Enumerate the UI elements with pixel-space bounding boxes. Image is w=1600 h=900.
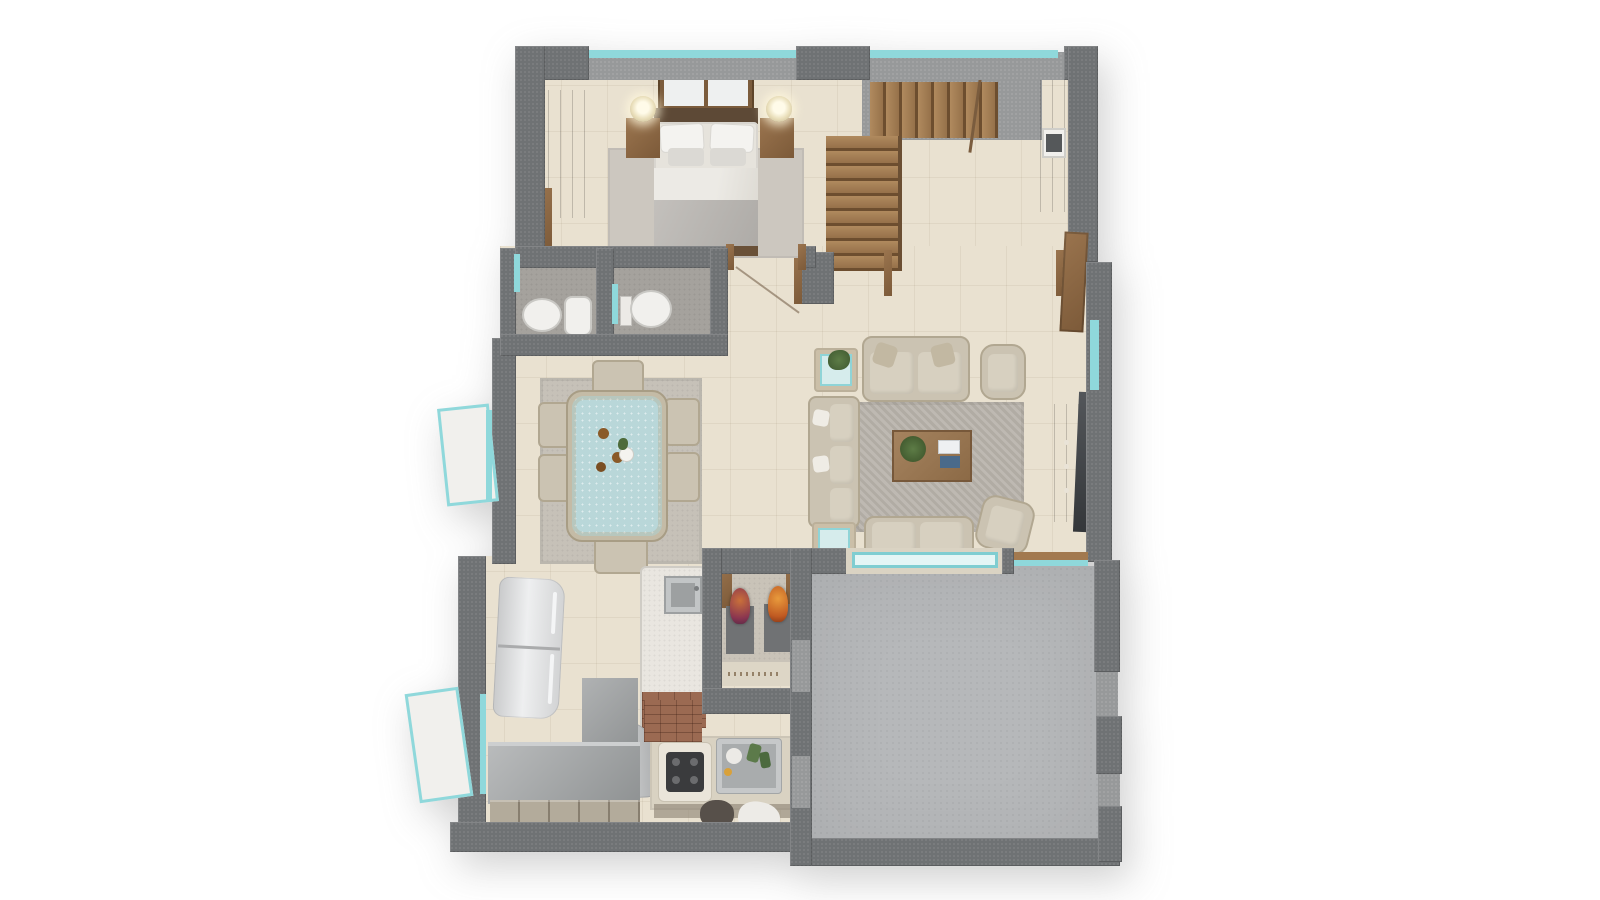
deity-statue-left bbox=[730, 588, 750, 624]
plate bbox=[596, 462, 606, 472]
floor-patio bbox=[806, 566, 1102, 856]
stair-stringer bbox=[898, 136, 902, 271]
pooja-west-wall bbox=[702, 548, 722, 698]
stair-step bbox=[826, 196, 898, 211]
console-knob bbox=[1064, 488, 1069, 493]
bedroom-south-wall bbox=[515, 246, 730, 268]
shower-tray bbox=[564, 296, 592, 336]
north-window-strip-1 bbox=[588, 50, 796, 58]
stair-step bbox=[826, 211, 898, 226]
armchair-top-right-seat bbox=[988, 354, 1018, 392]
appliance-door bbox=[1046, 134, 1062, 152]
north-window-strip-2 bbox=[868, 50, 1058, 58]
counter-l-vertical bbox=[582, 678, 638, 752]
passage-post bbox=[884, 250, 892, 296]
patio-rail-wood bbox=[1014, 552, 1088, 560]
sectional-seat bbox=[830, 446, 854, 484]
toilet-bowl bbox=[630, 290, 672, 328]
burner bbox=[672, 758, 680, 766]
table-lamp-left bbox=[630, 96, 656, 122]
casement-sill-kitchen bbox=[480, 694, 486, 794]
stair-step bbox=[826, 181, 898, 196]
stair-step bbox=[886, 82, 902, 138]
throw-pillow bbox=[812, 409, 831, 428]
patio-east-gap bbox=[1096, 672, 1118, 716]
washbasin bbox=[522, 298, 562, 332]
patio-rail-glass bbox=[1014, 560, 1088, 566]
counter-l-top bbox=[488, 746, 640, 804]
bath-door-teal-left bbox=[514, 254, 520, 292]
patio-west-gap bbox=[792, 756, 810, 808]
floor-plan-render bbox=[0, 0, 1600, 900]
coffee-table-plant bbox=[900, 436, 926, 462]
living-east-wall bbox=[1086, 262, 1112, 562]
coffee-table-book bbox=[940, 456, 960, 468]
cooktop bbox=[666, 752, 704, 792]
nightstand-left bbox=[626, 118, 660, 158]
sponge-yellow bbox=[724, 768, 732, 776]
bath-south-wall bbox=[500, 334, 728, 356]
kitchen-south-wall bbox=[450, 822, 802, 852]
island-faucet bbox=[694, 586, 699, 591]
plate bbox=[598, 428, 609, 439]
deity-statue-right bbox=[768, 586, 788, 622]
nightstand-right bbox=[760, 118, 794, 158]
flower-sprig bbox=[618, 438, 628, 450]
stair-step bbox=[826, 136, 898, 151]
bed-blanket bbox=[654, 200, 758, 248]
console-knob bbox=[1064, 464, 1069, 469]
island-sink-basin bbox=[671, 583, 695, 607]
console-knob bbox=[1064, 440, 1069, 445]
patio-west-wall bbox=[790, 548, 812, 866]
dining-west-wall bbox=[492, 338, 516, 564]
burner bbox=[690, 758, 698, 766]
dish bbox=[726, 748, 742, 764]
patio-east-wall-2 bbox=[1096, 716, 1122, 774]
stair-step bbox=[982, 82, 998, 138]
table-lamp-right bbox=[766, 96, 792, 122]
stair-step bbox=[870, 82, 886, 138]
patio-south-wall bbox=[796, 838, 1120, 866]
patio-north-wall bbox=[702, 548, 848, 574]
pooja-south-wall bbox=[702, 688, 802, 714]
side-table-plant bbox=[828, 350, 850, 370]
stair-step bbox=[934, 82, 950, 138]
patio-north-pier bbox=[1002, 548, 1014, 574]
bed-sheet bbox=[654, 168, 758, 204]
bedroom-west-wall bbox=[515, 46, 545, 264]
stair-step bbox=[826, 226, 898, 241]
dining-chair-right-2 bbox=[664, 452, 700, 502]
brick-chimney bbox=[644, 700, 702, 742]
north-pier-mid bbox=[796, 46, 870, 80]
patio-east-wall-1 bbox=[1094, 560, 1120, 672]
pillow-small-left bbox=[668, 148, 704, 166]
sectional-seat bbox=[830, 488, 854, 522]
casement-sill-dining bbox=[486, 410, 492, 502]
burner bbox=[672, 776, 680, 784]
dining-table-top bbox=[572, 396, 662, 536]
pillow-small-right bbox=[710, 148, 746, 166]
patio-east-gap bbox=[1098, 774, 1120, 806]
dining-chair-right-1 bbox=[664, 398, 700, 446]
stair-step bbox=[950, 82, 966, 138]
bedroom-door-jamb bbox=[798, 244, 806, 270]
stair-step bbox=[826, 166, 898, 181]
east-glass-strip bbox=[1090, 320, 1099, 390]
stair-step bbox=[918, 82, 934, 138]
burner bbox=[690, 776, 698, 784]
micro-text-illegible bbox=[728, 672, 782, 676]
throw-pillow bbox=[812, 455, 830, 473]
bath-door-teal-right bbox=[612, 284, 618, 324]
patio-picture-window bbox=[852, 552, 998, 568]
stair-step bbox=[826, 151, 898, 166]
sectional-seat bbox=[830, 404, 854, 442]
stair-step bbox=[902, 82, 918, 138]
patio-west-gap bbox=[792, 640, 810, 692]
wardrobe bbox=[548, 90, 596, 218]
stairhall-east-wall bbox=[1068, 46, 1098, 262]
coffee-table-book bbox=[938, 440, 960, 454]
patio-east-wall-3 bbox=[1098, 806, 1122, 862]
